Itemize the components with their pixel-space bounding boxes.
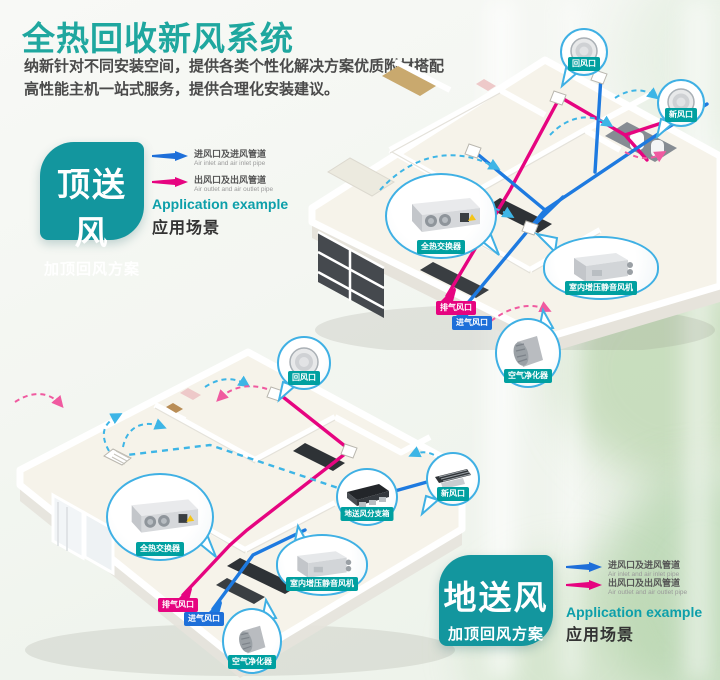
callout-top-return-vent: 回风口: [560, 28, 608, 76]
callout-bottom-heat-exchanger: 全热交换器: [106, 473, 214, 561]
scheme-top-badge-subtitle: 加顶回风方案: [40, 258, 144, 279]
scheme-bottom-badge-subtitle: 加顶回风方案: [439, 623, 553, 644]
label-exhaust-vent: 排气风口: [436, 301, 476, 315]
label-floor-supply-box: 地送风分支箱: [341, 507, 394, 521]
outlet-arrow-icon: [152, 176, 188, 188]
label-heat-exchanger: 全热交换器: [136, 542, 184, 556]
heat-exchanger-icon: [398, 194, 484, 238]
inlet-arrow-icon: [152, 150, 188, 162]
page-title: 全热回收新风系统: [22, 12, 294, 60]
callout-top-booster-fan: 室内增压静音风机: [543, 236, 659, 300]
label-air-purifier: 空气净化器: [504, 369, 552, 383]
callout-bottom-air-purifier: 空气净化器: [222, 608, 282, 674]
legend-inlet-en: Air inlet and air inlet pipe: [194, 160, 266, 168]
legend-outlet-zh: 出风口及出风管道: [194, 176, 273, 186]
callout-bottom-return-vent: 回风口: [277, 336, 331, 390]
poster-canvas: 全热回收新风系统 纳新针对不同安装空间，提供各类个性化解决方案优质附材搭配 高性…: [0, 0, 720, 680]
label-booster-fan: 室内增压静音风机: [286, 577, 358, 591]
scheme-bottom-application-example-en: Application example: [566, 604, 702, 620]
callout-bottom-fresh-vent: 新风口: [426, 452, 480, 506]
scheme-top-application-example-en: Application example: [152, 196, 288, 212]
label-exhaust-vent: 排气风口: [158, 598, 198, 612]
legend-top-inlet: 进风口及进风管道 Air inlet and air inlet pipe: [152, 150, 266, 168]
label-fresh-vent: 新风口: [437, 487, 469, 501]
scheme-bottom-application-example-zh: 应用场景: [566, 621, 634, 645]
callout-bottom-floor-supply-box: 地送风分支箱: [336, 468, 398, 526]
heat-exchanger-icon: [118, 495, 202, 539]
label-return-vent: 回风口: [288, 371, 320, 385]
callout-top-air-purifier: 空气净化器: [495, 318, 561, 388]
label-air-purifier: 空气净化器: [228, 655, 276, 669]
label-heat-exchanger: 全热交换器: [417, 240, 465, 254]
label-intake-vent: 进气风口: [452, 316, 492, 330]
legend-top-outlet: 出风口及出风管道 Air outlet and air outlet pipe: [152, 176, 273, 194]
scheme-top-application-example-zh: 应用场景: [152, 214, 220, 238]
callout-top-heat-exchanger: 全热交换器: [385, 173, 497, 259]
outlet-arrow-icon: [566, 579, 602, 591]
inlet-arrow-icon: [566, 561, 602, 573]
legend-bottom-inlet: 进风口及进风管道 Air inlet and air inlet pipe: [566, 561, 680, 579]
legend-inlet-zh: 进风口及进风管道: [194, 150, 266, 160]
callout-bottom-booster-fan: 室内增压静音风机: [276, 534, 368, 596]
legend-outlet-zh: 出风口及出风管道: [608, 579, 687, 589]
legend-outlet-en: Air outlet and air outlet pipe: [608, 589, 687, 597]
label-fresh-vent: 新风口: [665, 108, 697, 122]
label-booster-fan: 室内增压静音风机: [565, 281, 637, 295]
legend-outlet-en: Air outlet and air outlet pipe: [194, 186, 273, 194]
callout-top-fresh-vent: 新风口: [657, 79, 705, 127]
label-return-vent: 回风口: [568, 57, 600, 71]
label-intake-vent: 进气风口: [184, 612, 224, 626]
scheme-bottom-badge: 地送风 加顶回风方案: [439, 555, 553, 646]
legend-bottom-outlet: 出风口及出风管道 Air outlet and air outlet pipe: [566, 579, 687, 597]
scheme-top-badge-title: 顶送风: [40, 158, 144, 254]
air-purifier-icon: [509, 332, 547, 374]
scheme-bottom-badge-title: 地送风: [439, 571, 553, 619]
scheme-top-badge: 顶送风 加顶回风方案: [40, 142, 144, 240]
legend-inlet-zh: 进风口及进风管道: [608, 561, 680, 571]
